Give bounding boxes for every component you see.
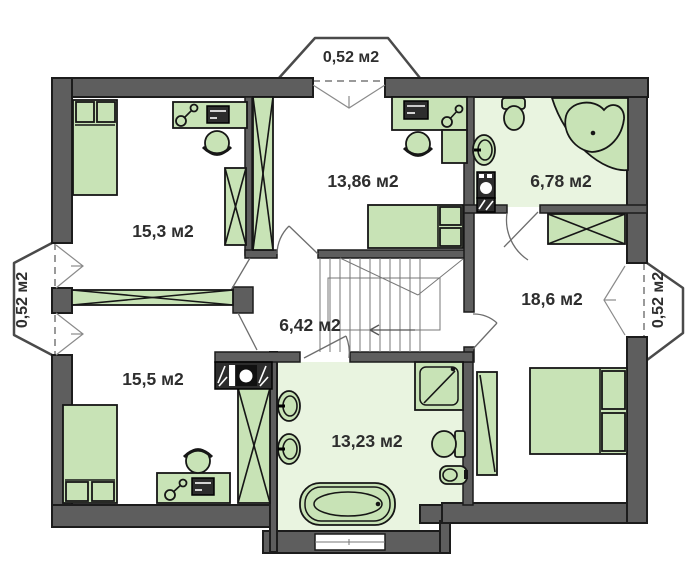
desk-2-return <box>442 130 467 163</box>
floor-plan-page: 15,3 м2 13,86 м2 6,78 м2 18,6 м2 6,42 м2… <box>0 0 700 575</box>
bathtub-icon <box>300 483 395 525</box>
wardrobe-icon <box>238 388 270 503</box>
washer-vent-unit <box>215 362 272 389</box>
wardrobe-icon <box>225 168 246 245</box>
washing-machine-icon <box>477 172 495 198</box>
computer-icon <box>404 101 428 119</box>
bidet-icon <box>440 466 468 484</box>
wall-hall-bottom-b <box>350 352 473 362</box>
wall-right-lower <box>627 337 647 523</box>
sink-icon <box>473 135 495 165</box>
wall-pier-center <box>245 250 277 258</box>
door-bath1323 <box>304 336 349 358</box>
stair-break-line-2 <box>340 258 418 295</box>
wall-shelf-pier-right <box>233 287 253 313</box>
bath-window <box>315 534 385 550</box>
door-room186 <box>473 314 497 349</box>
bay-label-right: 0,52 м2 <box>650 272 667 328</box>
pillow <box>66 482 88 501</box>
stair-well <box>328 278 440 330</box>
pillow <box>92 482 114 501</box>
wall-bath678-bottom-b <box>540 205 647 213</box>
bay-label-top: 0,52 м2 <box>323 49 379 66</box>
furniture-room-18-6 <box>477 214 627 475</box>
door-bath678 <box>504 212 538 260</box>
pillow <box>602 371 625 409</box>
computer-icon <box>207 106 229 123</box>
chair-icon <box>203 131 231 155</box>
room-label-6-78: 6,78 м2 <box>530 171 592 191</box>
wall-hall-bottom-a <box>215 352 300 362</box>
computer-icon <box>192 478 214 495</box>
wall-bottom-right <box>442 503 647 523</box>
room-label-6-42: 6,42 м2 <box>279 315 341 335</box>
sink-icon <box>278 434 300 464</box>
room-label-15-3: 15,3 м2 <box>132 221 194 241</box>
bed-double <box>530 368 627 454</box>
pillow <box>440 207 461 225</box>
pillow <box>97 102 115 122</box>
open-door-leaf <box>477 372 497 475</box>
toilet-icon <box>432 431 465 457</box>
pillow <box>602 413 625 451</box>
wardrobe-icon <box>548 214 625 244</box>
wall-room1386-stairs <box>318 250 465 258</box>
long-shelf-divider <box>72 290 233 305</box>
wall-right-upper <box>627 97 647 263</box>
room-label-15-5: 15,5 м2 <box>122 369 184 389</box>
wardrobe-icon <box>253 97 273 250</box>
bed-single-2 <box>368 205 463 248</box>
wall-bottom-left <box>52 505 277 527</box>
wall-top-right <box>385 78 648 97</box>
door-room155 <box>238 313 257 350</box>
wall-left-upper <box>52 78 72 243</box>
pillow <box>76 102 94 122</box>
wall-step-b <box>440 521 450 553</box>
floor-plan-drawing: 15,3 м2 13,86 м2 6,78 м2 18,6 м2 6,42 м2… <box>0 0 700 575</box>
chair-icon <box>184 449 212 473</box>
room-label-13-23: 13,23 м2 <box>331 431 403 451</box>
shower-icon <box>415 362 463 410</box>
vent-shaft-icon <box>477 198 495 212</box>
room-label-13-86: 13,86 м2 <box>327 171 399 191</box>
bay-label-left: 0,52 м2 <box>14 272 31 328</box>
chair-icon <box>404 132 432 156</box>
wall-top-left <box>52 78 313 97</box>
door-room1386 <box>277 226 318 254</box>
wall-left-bay-pier <box>52 288 72 313</box>
room-label-18-6: 18,6 м2 <box>521 289 583 309</box>
sink-icon <box>278 391 300 421</box>
toilet-icon <box>502 98 525 130</box>
pillow <box>440 228 461 246</box>
stair-direction-arrow <box>370 325 415 335</box>
